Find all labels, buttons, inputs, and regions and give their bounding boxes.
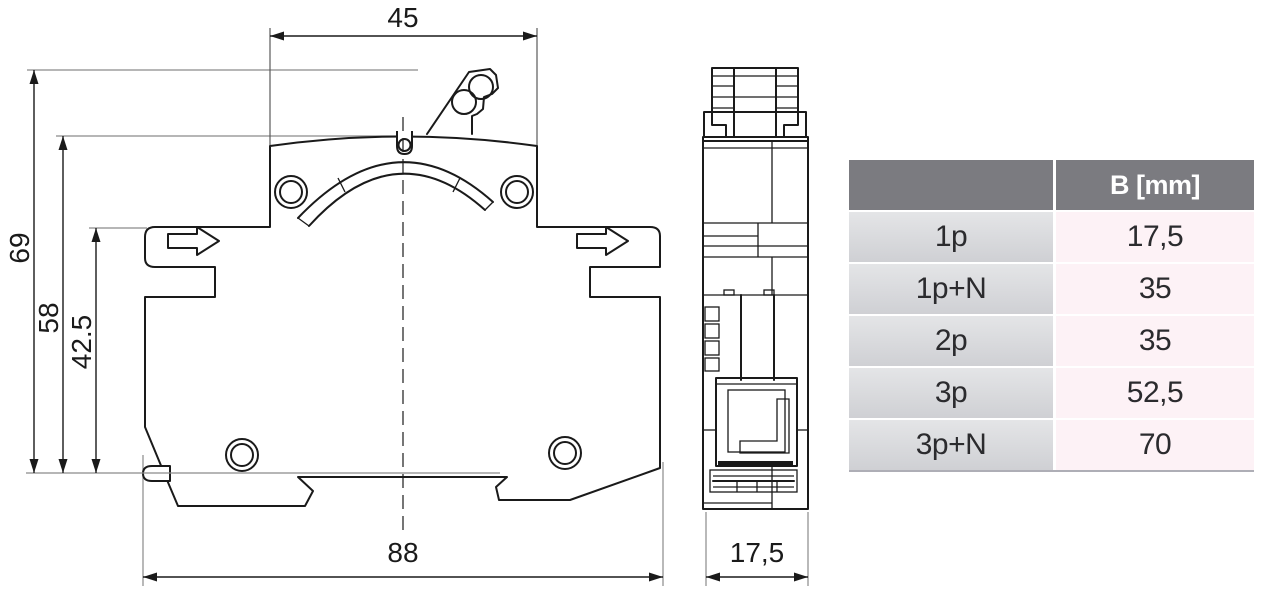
front-view-drawing [143, 69, 660, 532]
table-cell-label: 1p [849, 212, 1053, 262]
table-header-parameter [849, 160, 1053, 210]
dimension-label-69: 69 [4, 232, 35, 263]
dimension-label-58: 58 [33, 302, 64, 333]
dimension-drawing-page: 45 69 58 42.5 88 [0, 0, 1269, 600]
table-header-row: B [mm] [849, 160, 1254, 210]
side-view-drawing [703, 68, 808, 509]
dimension-69: 69 [4, 70, 39, 473]
lever-hole-lower [452, 90, 476, 114]
dimension-45: 45 [270, 2, 537, 41]
dimension-58: 58 [33, 136, 68, 473]
pivot-pin [397, 131, 412, 154]
table-header-b-mm: B [mm] [1053, 160, 1254, 210]
dimension-label-42-5: 42.5 [66, 315, 97, 370]
dimension-label-45: 45 [387, 2, 418, 33]
table-cell-value: 17,5 [1053, 212, 1254, 262]
dimension-label-88: 88 [387, 537, 418, 568]
table-row: 2p 35 [849, 314, 1254, 366]
table-row: 1p+N 35 [849, 262, 1254, 314]
table-cell-label: 2p [849, 316, 1053, 366]
lever-hole-upper [469, 75, 493, 99]
table-cell-value: 52,5 [1053, 368, 1254, 418]
dimension-17-5: 17,5 [706, 537, 808, 582]
table-cell-label: 1p+N [849, 264, 1053, 314]
table-cell-value: 70 [1053, 420, 1254, 470]
table-row: 3p+N 70 [849, 418, 1254, 470]
table-cell-value: 35 [1053, 316, 1254, 366]
toggle-lever [427, 69, 498, 134]
table-cell-label: 3p+N [849, 420, 1053, 470]
width-table: B [mm] 1p 17,5 1p+N 35 2p 35 3p 52,5 3p+… [849, 160, 1254, 472]
table-row: 3p 52,5 [849, 366, 1254, 418]
dimension-88: 88 [143, 537, 663, 582]
table-row: 1p 17,5 [849, 210, 1254, 262]
dimension-label-17-5: 17,5 [730, 537, 785, 568]
table-cell-value: 35 [1053, 264, 1254, 314]
dimension-42-5: 42.5 [66, 228, 101, 473]
table-cell-label: 3p [849, 368, 1053, 418]
